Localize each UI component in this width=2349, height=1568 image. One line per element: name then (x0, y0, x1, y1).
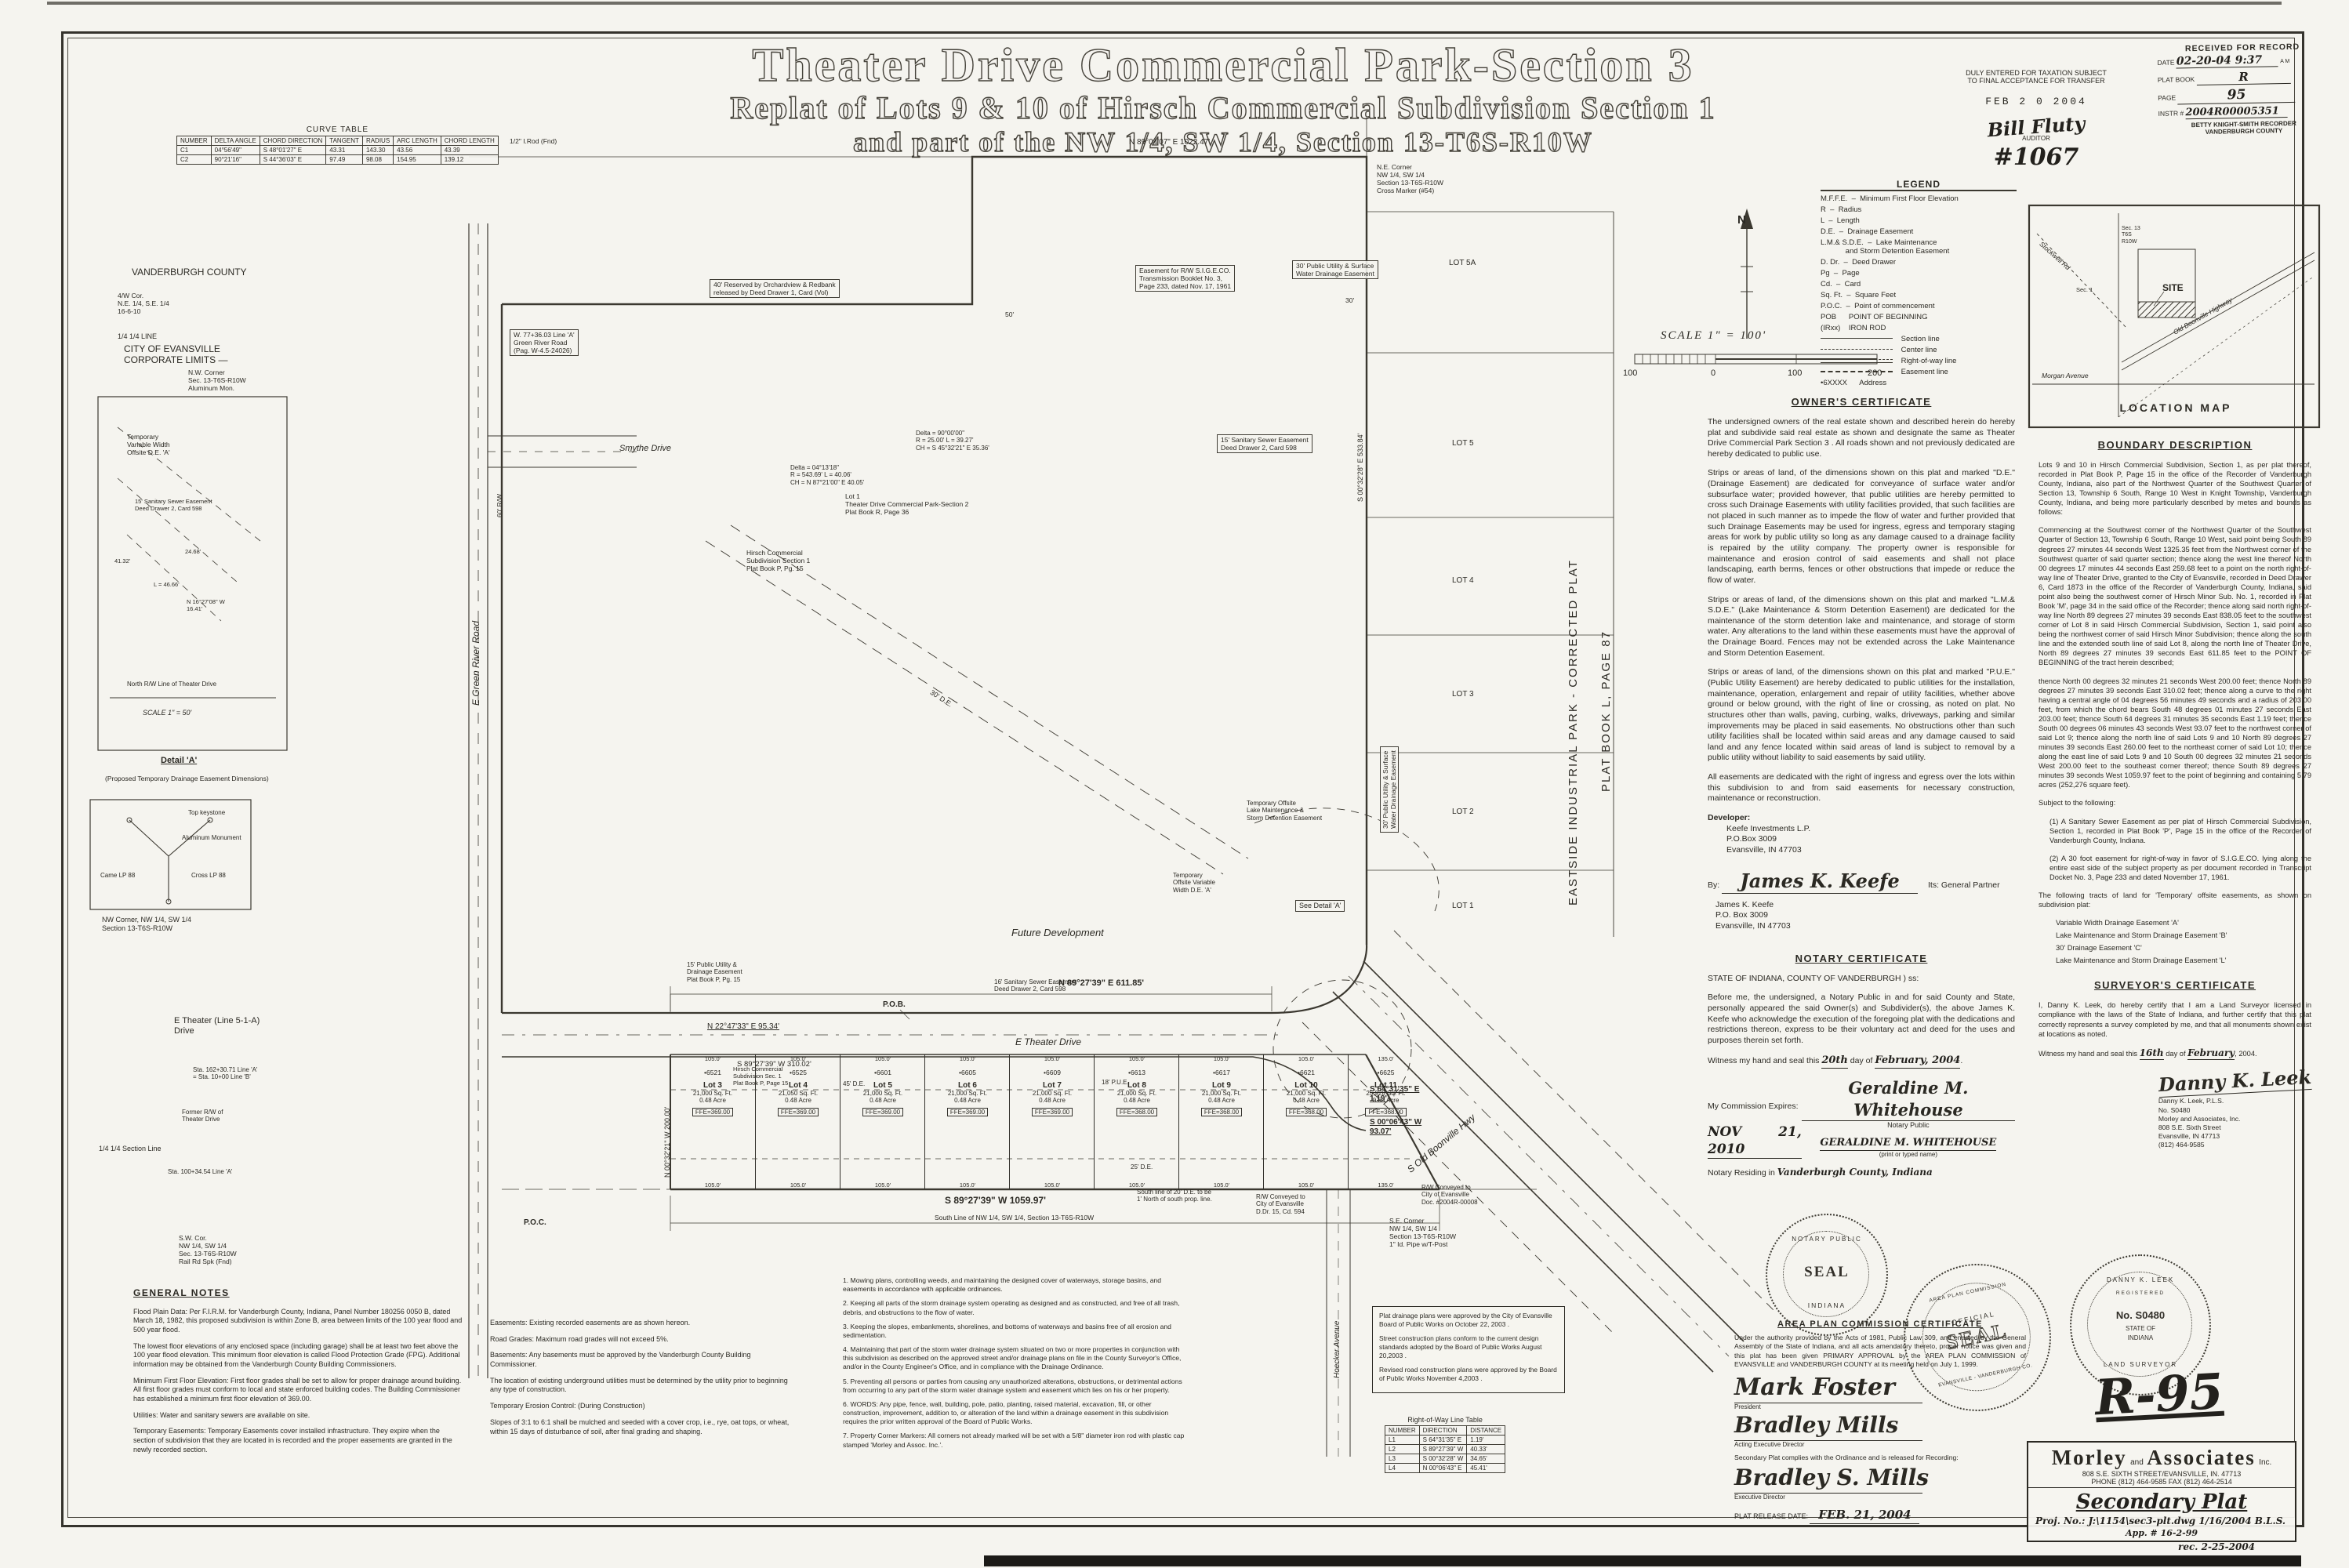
lot-address: •6605 (925, 1069, 1010, 1076)
temp-easement-heading: The following tracts of land for 'Tempor… (2039, 891, 2311, 909)
row-table-cell: S 89°27'39" W (1419, 1445, 1467, 1454)
lot-parcel: 105.0'•6621Lot 1021,000 Sq. Ft.0.48 Acre… (1263, 1054, 1349, 1189)
boundary-paragraph: thence North 00 degrees 32 minutes 21 se… (2039, 677, 2311, 790)
curve-table-cell: S 48°01'27" E (260, 146, 326, 155)
notary-public-seal: NOTARY PUBLIC SEAL INDIANA (1766, 1214, 1888, 1336)
lot-number: Lot 3 (670, 1081, 755, 1090)
table-row: L2S 89°27'39" W40.33' (1385, 1445, 1505, 1454)
lot-area-sqft: 21,000 Sq. Ft. (1010, 1090, 1095, 1097)
lot-area-sqft: 21,000 Sq. Ft. (925, 1090, 1010, 1097)
secondary-note: The location of existing underground uti… (490, 1377, 796, 1395)
received-for-record-stamp: RECEIVED FOR RECORD DATE 02-20-04 9:37 A… (2157, 42, 2329, 136)
legend-item: D.E. – Drainage Easement (1821, 227, 2017, 236)
temp-easement-item: Lake Maintenance and Storm Drainage Ease… (2056, 956, 2311, 965)
general-notes: GENERAL NOTES Flood Plain Data: Per F.I.… (133, 1287, 463, 1462)
lot-number: Lot 10 (1264, 1081, 1349, 1090)
notary-state-line: STATE OF INDIANA, COUNTY OF VANDERBURGH … (1708, 974, 2015, 985)
lot-width-top: 105.0' (1010, 1055, 1095, 1062)
lot-parcel: 105.0'•6613Lot 821,000 Sq. Ft.0.48 AcreF… (1094, 1054, 1179, 1189)
row-table-cell: S 00°32'28" W (1419, 1454, 1467, 1464)
lot-width-bottom: 105.0' (1010, 1181, 1095, 1189)
legend-line-sample (1821, 349, 1893, 350)
lot-area-acres: 0.48 Acre (1095, 1097, 1179, 1104)
surveyor-name-block: Danny K. Leek, P.L.S. No. S0480 Morley a… (2158, 1097, 2311, 1149)
legend-item: D. Dr. – Deed Drawer (1821, 258, 2017, 267)
curve-table-header: CHORD LENGTH (441, 136, 498, 146)
legend-item: Cd. – Card (1821, 280, 2017, 289)
owners-certificate-heading: OWNER'S CERTIFICATE (1708, 396, 2015, 409)
notary-seal-bottom-text: INDIANA (1767, 1301, 1886, 1309)
board-of-public-works-box: Plat drainage plans were approved by the… (1372, 1306, 1565, 1393)
firm-phone: PHONE (812) 464-9585 FAX (812) 464-2514 (2030, 1478, 2293, 1486)
table-row: L3S 00°32'28" W34.65' (1385, 1454, 1505, 1464)
firm-title-block: Morley and Associates Inc. 808 S.E. SIXT… (2027, 1441, 2296, 1542)
lot-width-top: 105.0' (756, 1055, 840, 1062)
legend-line-item: Right-of-way line (1821, 357, 2017, 365)
boundary-paragraph: Commencing at the Southwest corner of th… (2039, 525, 2311, 667)
lot-width-top: 105.0' (1264, 1055, 1349, 1062)
curve-table: NUMBERDELTA ANGLECHORD DIRECTIONTANGENTR… (176, 136, 499, 165)
taxation-line1: DULY ENTERED FOR TAXATION SUBJECT (1922, 69, 2150, 77)
lot-width-top: 135.0' (1349, 1055, 1423, 1062)
surveyor-seal-name: DANNY K. LEEK (2071, 1276, 2209, 1283)
project-number: Proj. No.: J:\1154\sec3-plt.dwg 1/16/200… (2031, 1514, 2293, 1528)
legend-item: Pg – Page (1821, 269, 2017, 278)
owner-printed-name: James K. Keefe P.O. Box 3009 Evansville,… (1715, 900, 2015, 932)
curve-table-cell: S 44°36'03" E (260, 155, 326, 165)
lot-parcel: 105.0'•6609Lot 721,000 Sq. Ft.0.48 AcreF… (1009, 1054, 1095, 1189)
secondary-notes: Easements: Existing recorded easements a… (490, 1319, 796, 1443)
general-note: Temporary Easements: Temporary Easements… (133, 1427, 463, 1454)
taxation-stamp: DULY ENTERED FOR TAXATION SUBJECT TO FIN… (1922, 69, 2150, 171)
row-table-cell: L4 (1385, 1464, 1420, 1473)
surveyor-seal-state2: INDIANA (2071, 1334, 2209, 1341)
lot-width-top: 105.0' (1095, 1055, 1179, 1062)
stamp-instr-label: INSTR # (2158, 109, 2184, 118)
stamp-page-value: 95 (2177, 86, 2295, 105)
stamp-book-label: PLAT BOOK (2158, 75, 2195, 84)
legend-item: (IRxx) IRON ROD (1821, 324, 2017, 332)
apc-director-signature: Bradley Mills (1734, 1412, 1898, 1438)
curve-table-header: CHORD DIRECTION (260, 136, 326, 146)
surveyor-seal-state: STATE OF (2071, 1325, 2209, 1332)
taxation-line2: TO FINAL ACCEPTANCE FOR TRANSFER (1922, 77, 2150, 85)
owners-certificate-paragraph: The undersigned owners of the real estat… (1708, 417, 2015, 460)
lot-width-bottom: 105.0' (1264, 1181, 1349, 1189)
table-row: C290°21'16"S 44°36'03" E97.4998.08154.95… (177, 155, 499, 165)
legend-line-label: Right-of-way line (1901, 357, 1957, 365)
general-note: The lowest floor elevations of any enclo… (133, 1342, 463, 1370)
surveyor-seal-registered: REGISTERED (2071, 1290, 2209, 1296)
secondary-note: Basements: Any basements must be approve… (490, 1351, 796, 1369)
lot-width-bottom: 135.0' (1349, 1181, 1423, 1189)
stamp-page-label: PAGE (2158, 94, 2176, 102)
row-table-header: DISTANCE (1467, 1426, 1505, 1436)
row-table-cell: N 00°06'43" E (1419, 1464, 1467, 1473)
lot-parcel: 105.0'•6601Lot 521,000 Sq. Ft.0.48 AcreF… (840, 1054, 925, 1189)
lot-width-top: 105.0' (670, 1055, 755, 1062)
lot-ffe: FFE=369.00 (862, 1108, 903, 1116)
witness-day: 20th (1821, 1054, 1848, 1069)
row-table-cell: L3 (1385, 1454, 1420, 1464)
lot-ffe: FFE=368.00 (1116, 1108, 1157, 1116)
surveyor-witness-line: Witness my hand and seal this 16th day o… (2039, 1047, 2311, 1061)
notary-residing-value: Vanderburgh County, Indiana (1777, 1167, 1933, 1178)
numbered-note: 7. Property Corner Markers: All corners … (843, 1432, 1188, 1449)
row-table-cell: 1.19' (1467, 1436, 1505, 1445)
notary-signature-title: Notary Public (1802, 1121, 2015, 1131)
row-table-cell: 45.41' (1467, 1464, 1505, 1473)
lot-width-bottom: 105.0' (670, 1181, 755, 1189)
owners-certificate-paragraph: Strips or areas of land, of the dimensio… (1708, 595, 2015, 659)
curve-table-cell: 43.31 (326, 146, 363, 155)
legend-title: LEGEND (1821, 179, 2017, 191)
lot-parcel: 105.0'•6521Lot 321,000 Sq. Ft.0.48 AcreF… (670, 1054, 755, 1189)
row-table-cell: L1 (1385, 1436, 1420, 1445)
curve-table-cell: 43.56 (394, 146, 441, 155)
secondary-note: Temporary Erosion Control: (During Const… (490, 1402, 796, 1411)
scale-label: SCALE 1" = 100' (1661, 329, 1766, 343)
stamp-instr-value: 2004R00005351 (2185, 105, 2287, 119)
curve-table-cell: 143.30 (362, 146, 393, 155)
notary-certificate-heading: NOTARY CERTIFICATE (1708, 953, 2015, 966)
legend-line-label: Center line (1901, 346, 1937, 354)
legend-line-sample (1821, 338, 1893, 339)
legend-address-note: •6XXXX Address (1821, 379, 2017, 387)
stamp-date-value: 02-20-04 9:37 (2177, 53, 2278, 68)
stamp-heading: RECEIVED FOR RECORD (2157, 42, 2328, 54)
lot-area-sqft: 21,000 Sq. Ft. (670, 1090, 755, 1097)
numbered-note: 1. Mowing plans, controlling weeds, and … (843, 1276, 1188, 1294)
row-table-title: Right-of-Way Line Table (1385, 1416, 1505, 1424)
row-table-cell: 40.33' (1467, 1445, 1505, 1454)
notary-printed-caption: (print or typed name) (1802, 1151, 2015, 1159)
legend-item: P.O.C. – Point of commencement (1821, 302, 2017, 310)
its-label: Its: General Partner (1928, 880, 2000, 890)
scale-tick: 100 (1623, 368, 1637, 378)
lot-address: •6525 (756, 1069, 840, 1076)
lot-area-acres: 0.48 Acre (1010, 1097, 1095, 1104)
curve-table-block: CURVE TABLE NUMBERDELTA ANGLECHORD DIREC… (176, 125, 499, 165)
surveyor-signature: Danny K. Leek (2158, 1065, 2312, 1098)
boundary-description: BOUNDARY DESCRIPTION Lots 9 and 10 in Hi… (2039, 439, 2311, 1150)
owners-certificate-paragraph: Strips or areas of land, of the dimensio… (1708, 667, 2015, 764)
row-line-table: NUMBERDIRECTIONDISTANCE L1S 64°31'35" E1… (1385, 1425, 1505, 1473)
curve-table-cell: 90°21'16" (211, 155, 260, 165)
legend-item: POB POINT OF BEGINNING (1821, 313, 2017, 321)
surveyor-witness-pre: Witness my hand and seal this (2039, 1050, 2140, 1058)
notary-seal-word: SEAL (1767, 1264, 1886, 1281)
curve-table-cell: 43.39 (441, 146, 498, 155)
apc-release-signature: Bradley S. Mills (1734, 1465, 1929, 1490)
surveyor-witness-end: , 2004. (2235, 1050, 2256, 1058)
lot-ffe: FFE=368.00 (1201, 1108, 1242, 1116)
lot-address: •6521 (670, 1069, 755, 1076)
curve-table-cell: C1 (177, 146, 212, 155)
lot-area-acres: 0.48 Acre (670, 1097, 755, 1104)
lot-ffe: FFE=368.00 (1365, 1108, 1406, 1116)
row-table-header: NUMBER (1385, 1426, 1420, 1436)
curve-table-cell: 98.08 (362, 155, 393, 165)
general-note: Minimum First Floor Elevation: First flo… (133, 1377, 463, 1404)
lot-parcel: 105.0'•6525Lot 421,050 Sq. Ft.0.48 AcreF… (755, 1054, 840, 1189)
secondary-note: Slopes of 3:1 to 6:1 shall be mulched an… (490, 1418, 796, 1436)
row-line-table-block: Right-of-Way Line Table NUMBERDIRECTIOND… (1385, 1416, 1505, 1473)
subject-item: (2) A 30 foot easement for right-of-way … (2049, 854, 2311, 882)
curve-table-cell: C2 (177, 155, 212, 165)
scale-tick: 100 (1788, 368, 1802, 378)
numbered-note: 6. WORDS: Any pipe, fence, wall, buildin… (843, 1400, 1188, 1427)
notary-witness-line: Witness my hand and seal this 20th day o… (1708, 1054, 2015, 1069)
developer-address: Keefe Investments L.P. P.O.Box 3009 Evan… (1726, 824, 2015, 856)
apc-release-text: Secondary Plat complies with the Ordinan… (1734, 1454, 2026, 1462)
temp-easement-item: Variable Width Drainage Easement 'A' (2056, 918, 2311, 927)
location-map-caption: LOCATION MAP (2070, 401, 2282, 414)
release-date-value: FEB. 21, 2004 (1810, 1508, 1919, 1524)
table-row: C104°56'49"S 48°01'27" E43.31143.3043.56… (177, 146, 499, 155)
surveyor-witness-mid: day of (2164, 1050, 2188, 1058)
curve-table-cell: 154.95 (394, 155, 441, 165)
notary-printed-name: GERALDINE M. WHITEHOUSE (1820, 1137, 1996, 1151)
bpw-note: Street construction plans conform to the… (1379, 1334, 1558, 1360)
surveyor-body: I, Danny K. Leek, do hereby certify that… (2039, 1000, 2311, 1038)
release-date-label: PLAT RELEASE DATE: (1734, 1512, 1808, 1520)
general-notes-heading: GENERAL NOTES (133, 1287, 463, 1300)
scale-tick: 200 (1868, 368, 1882, 378)
legend-item: L – Length (1821, 216, 2017, 225)
lot-parcel: 105.0'•6617Lot 921,000 Sq. Ft.0.48 AcreF… (1178, 1054, 1264, 1189)
secondary-note: Road Grades: Maximum road grades will no… (490, 1335, 796, 1345)
curve-table-header: NUMBER (177, 136, 212, 146)
lot-ffe: FFE=369.00 (1032, 1108, 1073, 1116)
secondary-note: Easements: Existing recorded easements a… (490, 1319, 796, 1328)
legend-line-label: Section line (1901, 335, 1940, 343)
lot-width-bottom: 105.0' (840, 1181, 925, 1189)
by-label: By: (1708, 880, 1719, 890)
legend-line-item: Section line (1821, 335, 2017, 343)
commission-label: My Commission Expires: (1708, 1102, 1802, 1112)
lot-area-acres: 0.48 Acre (925, 1097, 1010, 1104)
apc-president-signature: Mark Foster (1734, 1374, 1895, 1401)
lot-address: •6613 (1095, 1069, 1179, 1076)
curve-table-header: TANGENT (326, 136, 363, 146)
firm-inc: Inc. (2259, 1458, 2271, 1467)
lot-area-sqft: 21,000 Sq. Ft. (1264, 1090, 1349, 1097)
legend-line-item: Easement line (1821, 368, 2017, 376)
numbered-note: 4. Maintaining that part of the storm wa… (843, 1345, 1188, 1372)
temp-easement-item: Lake Maintenance and Storm Drainage Ease… (2056, 931, 2311, 940)
legend-item: L.M.& S.D.E. – Lake Maintenance and Stor… (1821, 238, 2017, 256)
legend-block: LEGEND M.F.F.E. – Minimum First Floor El… (1821, 179, 2017, 390)
lot-number: Lot 6 (925, 1081, 1010, 1090)
lot-address: •6617 (1179, 1069, 1264, 1076)
taxation-date-stamp: FEB 2 0 2004 (1922, 96, 2150, 107)
lot-area-sqft: 21,000 Sq. Ft. (840, 1090, 925, 1097)
notary-seal-top-text: NOTARY PUBLIC (1767, 1236, 1886, 1243)
lot-width-bottom: 105.0' (925, 1181, 1010, 1189)
lot-parcel: 135.0'•6625Lot 1125,928 Sq. Ft.0.60 Acre… (1348, 1054, 1423, 1189)
lot-address: •6625 (1349, 1069, 1423, 1076)
lot-parcel: 105.0'•6605Lot 621,000 Sq. Ft.0.48 AcreF… (924, 1054, 1010, 1189)
table-row: L1S 64°31'35" E1.19' (1385, 1436, 1505, 1445)
lot-area-sqft: 21,000 Sq. Ft. (1179, 1090, 1264, 1097)
row-table-header: DIRECTION (1419, 1426, 1467, 1436)
witness-end: . (1960, 1056, 1962, 1065)
apc-president-title: President (1734, 1403, 1922, 1411)
general-note: Utilities: Water and sanitary sewers are… (133, 1411, 463, 1421)
curve-table-header: ARC LENGTH (394, 136, 441, 146)
bpw-note: Revised road construction plans were app… (1379, 1366, 1558, 1383)
sheet-number: R-95 (2093, 1363, 2224, 1426)
lot-area-acres: 0.48 Acre (1179, 1097, 1264, 1104)
surveyor-witness-day: 16th (2140, 1047, 2164, 1061)
row-table-cell: S 64°31'35" E (1419, 1436, 1467, 1445)
general-note: Flood Plain Data: Per F.I.R.M. for Vande… (133, 1308, 463, 1335)
lot-number: Lot 5 (840, 1081, 925, 1090)
lot-number: Lot 8 (1095, 1081, 1179, 1090)
lot-area-sqft: 25,928 Sq. Ft. (1349, 1090, 1423, 1097)
curve-table-header: RADIUS (362, 136, 393, 146)
legend-line-item: Center line (1821, 346, 2017, 354)
boundary-heading: BOUNDARY DESCRIPTION (2039, 439, 2311, 452)
surveyor-seal-number: No. S0480 (2071, 1309, 2209, 1321)
row-table-cell: 34.65' (1467, 1454, 1505, 1464)
lot-width-top: 105.0' (925, 1055, 1010, 1062)
legend-line-label: Easement line (1901, 368, 1948, 376)
lot-width-bottom: 105.0' (1179, 1181, 1264, 1189)
curve-table-cell: 139.12 (441, 155, 498, 165)
stamp-book-value: R (2196, 69, 2290, 85)
lot-address: •6609 (1010, 1069, 1095, 1076)
firm-name-2: Associates (2147, 1446, 2255, 1469)
row-table-cell: L2 (1385, 1445, 1420, 1454)
firm-and: and (2130, 1458, 2144, 1467)
legend-item: Sq. Ft. – Square Feet (1821, 291, 2017, 299)
notary-residing-label: Notary Residing in (1708, 1168, 1775, 1178)
developer-label: Developer: (1708, 813, 1750, 822)
lot-number: Lot 9 (1179, 1081, 1264, 1090)
lot-area-acres: 0.48 Acre (1264, 1097, 1349, 1104)
lot-address: •6621 (1264, 1069, 1349, 1076)
boundary-paragraph: Lots 9 and 10 in Hirsch Commercial Subdi… (2039, 460, 2311, 517)
firm-address: 808 S.E. SIXTH STREET/EVANSVILLE, IN. 47… (2030, 1470, 2293, 1478)
plat-type: Secondary Plat (2076, 1490, 2248, 1514)
surveyor-certificate-heading: SURVEYOR'S CERTIFICATE (2039, 979, 2311, 993)
owners-certificate-paragraph: All easements are dedicated with the rig… (1708, 772, 2015, 804)
notary-signature: Geraldine M. Whitehouse (1802, 1077, 2015, 1121)
entry-number: #1067 (1922, 143, 2150, 171)
legend-item: M.F.F.E. – Minimum First Floor Elevation (1821, 194, 2017, 203)
lots-row: 105.0'•6521Lot 321,000 Sq. Ft.0.48 AcreF… (670, 1054, 1440, 1189)
approval-note: App. # 16-2-99 (2031, 1528, 2293, 1538)
surveyor-witness-month: February (2187, 1047, 2235, 1061)
subject-heading: Subject to the following: (2039, 798, 2311, 808)
curve-table-title: CURVE TABLE (176, 125, 499, 134)
notary-body: Before me, the undersigned, a Notary Pub… (1708, 993, 2015, 1046)
lot-area-acres: 0.48 Acre (840, 1097, 925, 1104)
numbered-note: 2. Keeping all parts of the storm draina… (843, 1299, 1188, 1316)
scale-tick: 0 (1711, 368, 1715, 378)
lot-ffe: FFE=369.00 (947, 1108, 988, 1116)
apc-release-title: Executive Director (1734, 1493, 1922, 1501)
lot-ffe: FFE=369.00 (692, 1108, 733, 1116)
witness-pre: Witness my hand and seal this (1708, 1056, 1821, 1065)
lot-address: •6601 (840, 1069, 925, 1076)
plat-sheet: Theater Drive Commercial Park-Section 3 … (0, 0, 2349, 1568)
subject-item: (1) A Sanitary Sewer Easement as per pla… (2049, 817, 2311, 845)
apc-director-title: Acting Executive Director (1734, 1440, 1922, 1449)
firm-name-1: Morley (2052, 1446, 2127, 1469)
lot-number: Lot 7 (1010, 1081, 1095, 1090)
lot-width-bottom: 105.0' (756, 1181, 840, 1189)
owner-signature: James K. Keefe (1740, 869, 1899, 892)
numbered-notes: 1. Mowing plans, controlling weeds, and … (843, 1276, 1188, 1455)
stamp-date-label: DATE (2157, 59, 2174, 67)
lot-ffe: FFE=368.00 (1286, 1108, 1327, 1116)
numbered-note: 3. Keeping the slopes, embankments, shor… (843, 1323, 1188, 1340)
witness-mid: day of (1848, 1056, 1875, 1065)
lot-ffe: FFE=369.00 (778, 1108, 819, 1116)
witness-month: February, 2004 (1875, 1054, 1960, 1069)
lot-area-acres: 0.60 Acre (1349, 1097, 1423, 1104)
lot-width-top: 105.0' (1179, 1055, 1264, 1062)
lot-area-sqft: 21,050 Sq. Ft. (756, 1090, 840, 1097)
lot-width-top: 105.0' (840, 1055, 925, 1062)
owners-certificate: OWNER'S CERTIFICATE The undersigned owne… (1708, 396, 2015, 1179)
lot-area-sqft: 21,000 Sq. Ft. (1095, 1090, 1179, 1097)
numbered-note: 5. Preventing all persons or parties fro… (843, 1377, 1188, 1395)
curve-table-header: DELTA ANGLE (211, 136, 260, 146)
table-row: L4N 00°06'43" E45.41' (1385, 1464, 1505, 1473)
lot-number: Lot 4 (756, 1081, 840, 1090)
temp-easement-item: 30' Drainage Easement 'C' (2056, 943, 2311, 953)
curve-table-cell: 04°56'49" (211, 146, 260, 155)
curve-table-cell: 97.49 (326, 155, 363, 165)
legend-line-sample (1821, 359, 1893, 363)
legend-item: R – Radius (1821, 205, 2017, 214)
stamp-ampm: A M (2280, 59, 2289, 64)
lot-width-bottom: 105.0' (1095, 1181, 1179, 1189)
lot-area-acres: 0.48 Acre (756, 1097, 840, 1104)
commission-date: NOV 21, 2010 (1708, 1123, 1802, 1159)
lot-number: Lot 11 (1349, 1081, 1423, 1090)
owners-certificate-paragraph: Strips or areas of land, of the dimensio… (1708, 468, 2015, 586)
bpw-note: Plat drainage plans were approved by the… (1379, 1312, 1558, 1329)
